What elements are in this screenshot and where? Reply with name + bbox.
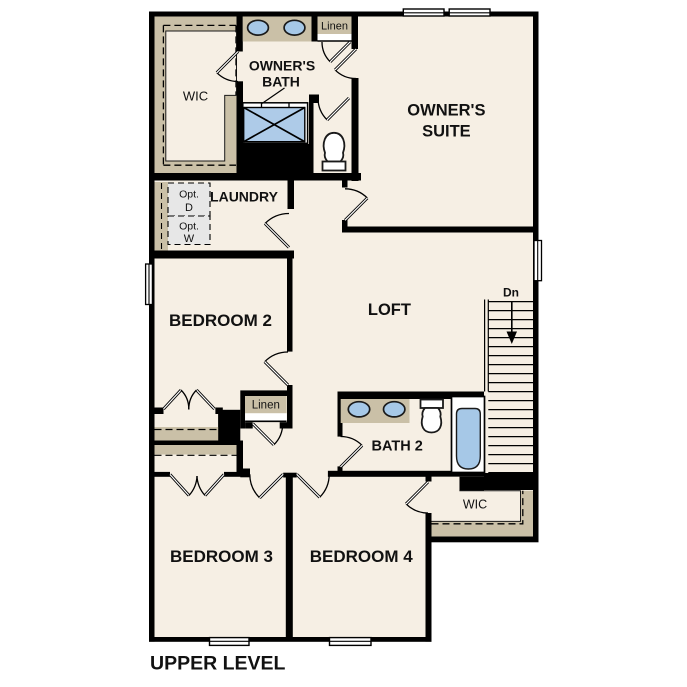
svg-text:BEDROOM 3: BEDROOM 3: [170, 547, 273, 566]
svg-text:Linen: Linen: [321, 21, 348, 33]
svg-text:Dn: Dn: [503, 286, 519, 300]
svg-text:WIC: WIC: [463, 497, 487, 511]
svg-text:OWNER'S: OWNER'S: [249, 58, 315, 74]
svg-text:OWNER'S: OWNER'S: [407, 102, 485, 120]
svg-text:LOFT: LOFT: [368, 301, 411, 319]
svg-text:WIC: WIC: [183, 89, 208, 104]
svg-text:W: W: [184, 233, 195, 245]
svg-text:BEDROOM 2: BEDROOM 2: [169, 311, 272, 330]
svg-text:UPPER LEVEL: UPPER LEVEL: [150, 653, 286, 675]
svg-text:LAUNDRY: LAUNDRY: [210, 189, 279, 205]
svg-text:Opt.: Opt.: [179, 189, 199, 201]
svg-text:D: D: [185, 202, 193, 214]
svg-text:BATH 2: BATH 2: [372, 439, 423, 455]
svg-text:Linen: Linen: [252, 400, 280, 412]
svg-text:SUITE: SUITE: [422, 123, 471, 141]
svg-text:BATH: BATH: [262, 74, 300, 90]
svg-text:Opt.: Opt.: [179, 221, 199, 233]
svg-text:BEDROOM 4: BEDROOM 4: [310, 547, 414, 566]
